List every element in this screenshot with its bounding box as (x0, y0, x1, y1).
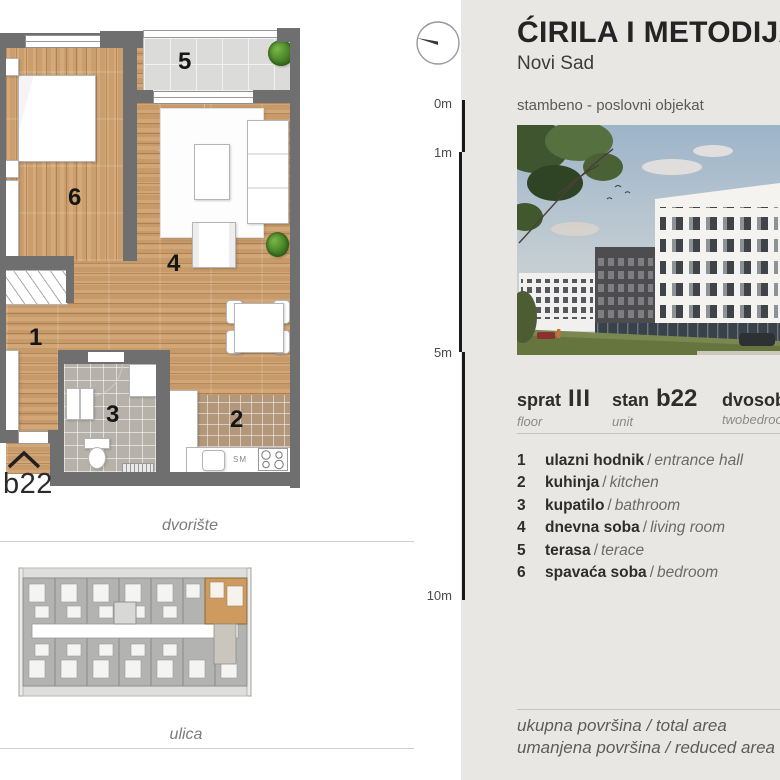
room-legend: 1ulazni hodnik/entrance hall 2kuhinja/ki… (517, 450, 780, 584)
legend-name-en: living room (650, 519, 725, 536)
balcony-door (153, 91, 255, 104)
legend-separator: / (602, 474, 606, 491)
floor-label: sprat (517, 390, 561, 410)
unit-value: b22 (656, 385, 697, 412)
toilet-bowl (88, 447, 106, 469)
project-city: Novi Sad (517, 53, 594, 75)
wall-bathroom-right (156, 350, 170, 486)
wall-right (290, 103, 300, 488)
wall-balcony-right (253, 90, 300, 103)
room-number-1: 1 (29, 324, 42, 352)
floor-value: III (568, 385, 591, 412)
type-value: dvosoban (722, 385, 780, 411)
room-number-2: 2 (230, 406, 243, 434)
legend-name-sr: terasa (545, 542, 591, 559)
courtyard-label: dvorište (110, 517, 270, 535)
total-area-label: ukupna površina / total area (517, 716, 727, 736)
terrace-railing (143, 30, 281, 38)
dining-table (234, 303, 284, 353)
kitchen-sink (202, 450, 225, 471)
legend-num: 6 (517, 562, 545, 584)
unit-label: stan (612, 390, 649, 410)
street-label: ulica (106, 726, 266, 744)
wall-bottom (62, 472, 300, 486)
bed (18, 75, 96, 162)
compass-icon (415, 20, 461, 66)
legend-name-sr: kuhinja (545, 474, 599, 491)
divider-info (517, 433, 780, 434)
north-chevron-icon (6, 450, 42, 470)
site-key-plan (18, 562, 252, 704)
legend-row: 3kupatilo/bathroom (517, 495, 780, 517)
floor-info: spratIII floor (517, 385, 591, 429)
scale-label-5m: 5m (412, 345, 452, 360)
wall-bedroom-living (123, 46, 137, 261)
legend-row: 1ulazni hodnik/entrance hall (517, 450, 780, 472)
brochure-page: { "header": { "title": "ĆIRILA I METODIJ… (0, 0, 780, 780)
wall-wardrobe-side (66, 256, 74, 303)
scale-bar-segment (462, 100, 465, 152)
scale-label-0m: 0m (412, 96, 452, 111)
type-sub: twobedroom (722, 412, 780, 427)
living-room-plant (266, 232, 289, 257)
sofa (247, 120, 289, 224)
wall-bedroom-bottom (0, 256, 74, 270)
legend-row: 2kuhinja/kitchen (517, 472, 780, 494)
legend-num: 2 (517, 472, 545, 494)
scale-label-10m: 10m (412, 588, 452, 603)
divider-areas (517, 709, 780, 710)
project-type: stambeno - poslovni objekat (517, 97, 704, 114)
unit-code-label: b22 (3, 468, 53, 501)
scale-bar-segment (459, 152, 462, 352)
wall-terrace-right (290, 28, 300, 92)
bathroom-door-gap (88, 352, 124, 362)
legend-name-en: bathroom (615, 497, 680, 514)
legend-separator: / (643, 519, 647, 536)
legend-row: 4dnevna soba/living room (517, 517, 780, 539)
entrance-door (18, 431, 50, 444)
wall-entry-left (0, 430, 18, 443)
legend-num: 4 (517, 517, 545, 539)
unit-info: stanb22 unit (612, 385, 697, 429)
room-number-5: 5 (178, 48, 191, 76)
legend-name-en: kitchen (610, 474, 659, 491)
unit-sub: unit (612, 414, 697, 429)
legend-separator: / (650, 564, 654, 581)
wall-left (0, 33, 6, 443)
coffee-table (194, 144, 230, 200)
legend-name-en: entrance hall (654, 452, 743, 469)
legend-name-en: bedroom (657, 564, 718, 581)
reduced-area-label: umanjena površina / reduced area (517, 738, 775, 758)
legend-num: 1 (517, 450, 545, 472)
legend-num: 5 (517, 540, 545, 562)
legend-name-sr: spavaća soba (545, 564, 647, 581)
floor-plan: SM 1 2 3 4 5 6 b22 (0, 0, 320, 510)
hall-wardrobe (0, 270, 68, 305)
scale-label-1m: 1m (412, 145, 452, 160)
divider-courtyard (0, 541, 414, 542)
stove (258, 448, 288, 471)
legend-separator: / (607, 497, 611, 514)
legend-num: 3 (517, 495, 545, 517)
room-number-3: 3 (106, 401, 119, 429)
room-number-4: 4 (167, 250, 180, 278)
bath-sink-cabinet (66, 388, 94, 420)
legend-name-sr: ulazni hodnik (545, 452, 644, 469)
legend-separator: / (647, 452, 651, 469)
washing-machine (129, 364, 158, 397)
counter-appliance-label: SM (233, 455, 247, 464)
legend-name-en: terace (601, 542, 644, 559)
type-info: dvosoban twobedroom (722, 385, 780, 427)
project-title: ĆIRILA I METODIJA (517, 16, 780, 50)
room-number-6: 6 (68, 184, 81, 212)
building-photo (517, 125, 780, 355)
scale-bar-segment (462, 352, 465, 600)
legend-row: 5terasa/terace (517, 540, 780, 562)
legend-name-sr: kupatilo (545, 497, 604, 514)
legend-row: 6spavaća soba/bedroom (517, 562, 780, 584)
divider-street (0, 748, 414, 749)
bedroom-window (25, 35, 101, 48)
floor-sub: floor (517, 414, 591, 429)
armchair (192, 222, 236, 268)
legend-separator: / (594, 542, 598, 559)
legend-name-sr: dnevna soba (545, 519, 640, 536)
